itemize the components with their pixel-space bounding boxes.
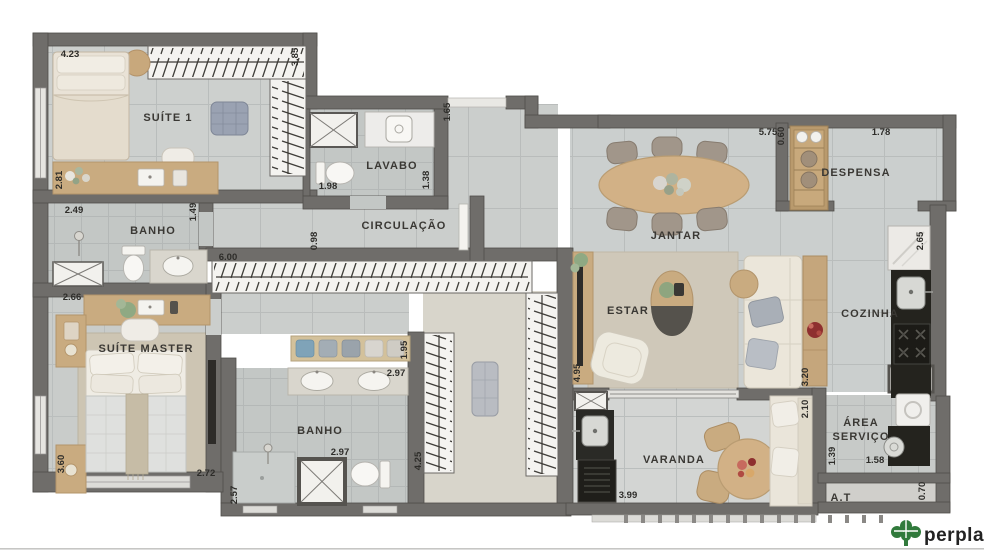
suite1-closet-top [148,46,306,79]
dim-banho2-bottom: 2.97 [331,447,350,458]
bed-pillow [137,352,182,375]
estar-tv [577,266,583,366]
banho1-door-gap [199,212,213,246]
dim-cozinha: 2.65 [915,231,926,250]
dim-banho1-width: 2.49 [65,205,84,216]
dim-despensa-shelf: 0.60 [776,127,787,146]
label-lavabo: LAVABO [366,160,417,172]
hall-door-leaf [459,204,468,250]
master-phone [170,301,178,314]
brand-logo: perplan [891,520,984,546]
estar-coffee-table [651,271,693,336]
suite1-closet-right [270,79,306,176]
dim-lavabo-height: 1.38 [421,171,432,190]
dim-lavabo-width: 1.98 [319,181,338,192]
sofa-pillow [745,338,779,370]
estar-side-table [730,270,758,298]
dim-estar-left: 4.95 [572,363,583,382]
wall-hall-divider [470,196,484,261]
walkin-closet-left-rod [424,333,454,473]
dim-suite1-top: 4.23 [61,49,80,60]
master-lamp [65,344,77,356]
label-varanda: VARANDA [643,454,705,466]
dim-banho2-shelf: 1.95 [399,340,410,359]
master-desk-chair [121,319,159,341]
banho2-towel-shelf [291,336,410,361]
jantar-table [599,156,749,214]
wall-right-outer-top [943,115,956,211]
label-area-servico-1: ÁREA [843,416,879,429]
floorplan-svg: SUÍTE 1 BANHO LAVABO CIRCULAÇÃO JANTAR D… [0,0,984,554]
dim-suite1-left: 2.81 [54,170,65,189]
dim-suite1-right: 3.85 [290,47,301,66]
despensa-pot [801,172,817,188]
label-suite-master: SUÍTE MASTER [98,342,193,355]
dim-closet-corridor: 6.00 [219,252,238,263]
suite1-pouf [211,102,248,135]
dim-varanda-bottom: 3.99 [619,490,638,501]
despensa-plate [811,132,822,143]
coffee-table-plant [659,282,675,298]
bed-pillow [89,352,134,375]
dim-suite-master-bottom: 2.72 [197,468,216,479]
banho2-shaft [299,459,345,504]
walkin-closet-right-rod [526,293,558,476]
master-bed [86,350,186,480]
lavabo-basin [386,116,412,142]
dim-estar-right: 3.20 [800,368,811,387]
label-suite1: SUÍTE 1 [143,111,192,124]
bed-pillow [139,374,182,394]
vent-banho2-2 [363,506,397,513]
despensa-pot [801,151,817,167]
wall-lavabo-right [434,109,448,209]
bed-runner [126,394,148,474]
wall-entry-step-h [525,115,610,128]
dim-at-right: 0.70 [917,482,928,501]
dim-despensa: 1.78 [872,127,891,138]
suite1-desk [53,162,218,194]
wall-closet-estar [557,248,573,503]
dim-area-servico-bottom: 1.58 [866,455,885,466]
banho1-toilet [122,246,145,281]
perplan-tree-icon [891,520,921,546]
wall-varanda-servico [812,388,826,508]
wall-suite1-top [33,33,317,46]
label-cozinha: COZINHA [841,308,899,320]
wall-lavabo-top [303,96,448,109]
dim-area-servico-left: 1.39 [827,447,838,466]
gourmet-grill-cabinet [578,460,616,502]
kitchen-stove [894,324,930,364]
banho1-vanity [150,250,207,283]
lavabo-door-gap [350,196,386,209]
floor-corridor-tiles [221,292,409,334]
varanda-table [718,439,778,499]
bench-pillow [771,447,800,478]
dim-circulacao: 0.98 [309,232,320,251]
entry-door-threshold [448,98,506,107]
brand-name: perplan [924,525,984,546]
label-banho2: BANHO [297,425,343,437]
dim-banho1-height: 1.49 [188,203,199,222]
banho2-shower [233,444,295,503]
label-estar: ESTAR [607,305,649,317]
washing-machine [896,394,930,426]
bench-pillow [770,400,799,427]
wall-at-top [818,473,950,483]
despensa-plate [797,132,808,143]
banho2-toilet [351,461,390,488]
suite1-desk-object [173,170,187,186]
dim-suite-master-top: 2.66 [63,292,82,303]
dim-varanda-right: 2.10 [800,400,811,419]
vent-banho2-1 [243,506,277,513]
suite1-bed [53,52,129,160]
bottom-border-line [0,548,984,550]
dim-suite-master-left: 3.60 [56,455,67,474]
bed-pillow [91,374,134,394]
dim-entry: 1.65 [442,102,453,121]
master-tv [208,360,216,444]
label-banho1: BANHO [130,225,176,237]
varanda-shaft [575,392,607,410]
floorplan-canvas: SUÍTE 1 BANHO LAVABO CIRCULAÇÃO JANTAR D… [0,0,984,554]
label-at: A.T [830,492,851,504]
corridor-closet-strip [212,261,532,293]
dim-closet-left: 4.25 [413,451,424,470]
banho1-shower-head [75,232,84,241]
jantar-furniture [599,137,749,235]
label-area-servico-2: SERVIÇO [832,431,889,443]
lavabo-shaft [310,113,357,147]
wall-closet-corridor-top [206,248,571,261]
wall-right-outer-bottom [936,396,950,512]
dim-banho2-counter: 2.97 [387,368,406,379]
kitchen-sideboard [803,256,827,386]
label-jantar: JANTAR [651,230,701,242]
banho1-shower-box [53,262,103,286]
label-circulacao: CIRCULAÇÃO [362,219,447,232]
dim-banho2-left: 2.57 [229,486,240,505]
label-despensa: DESPENSA [821,167,890,179]
